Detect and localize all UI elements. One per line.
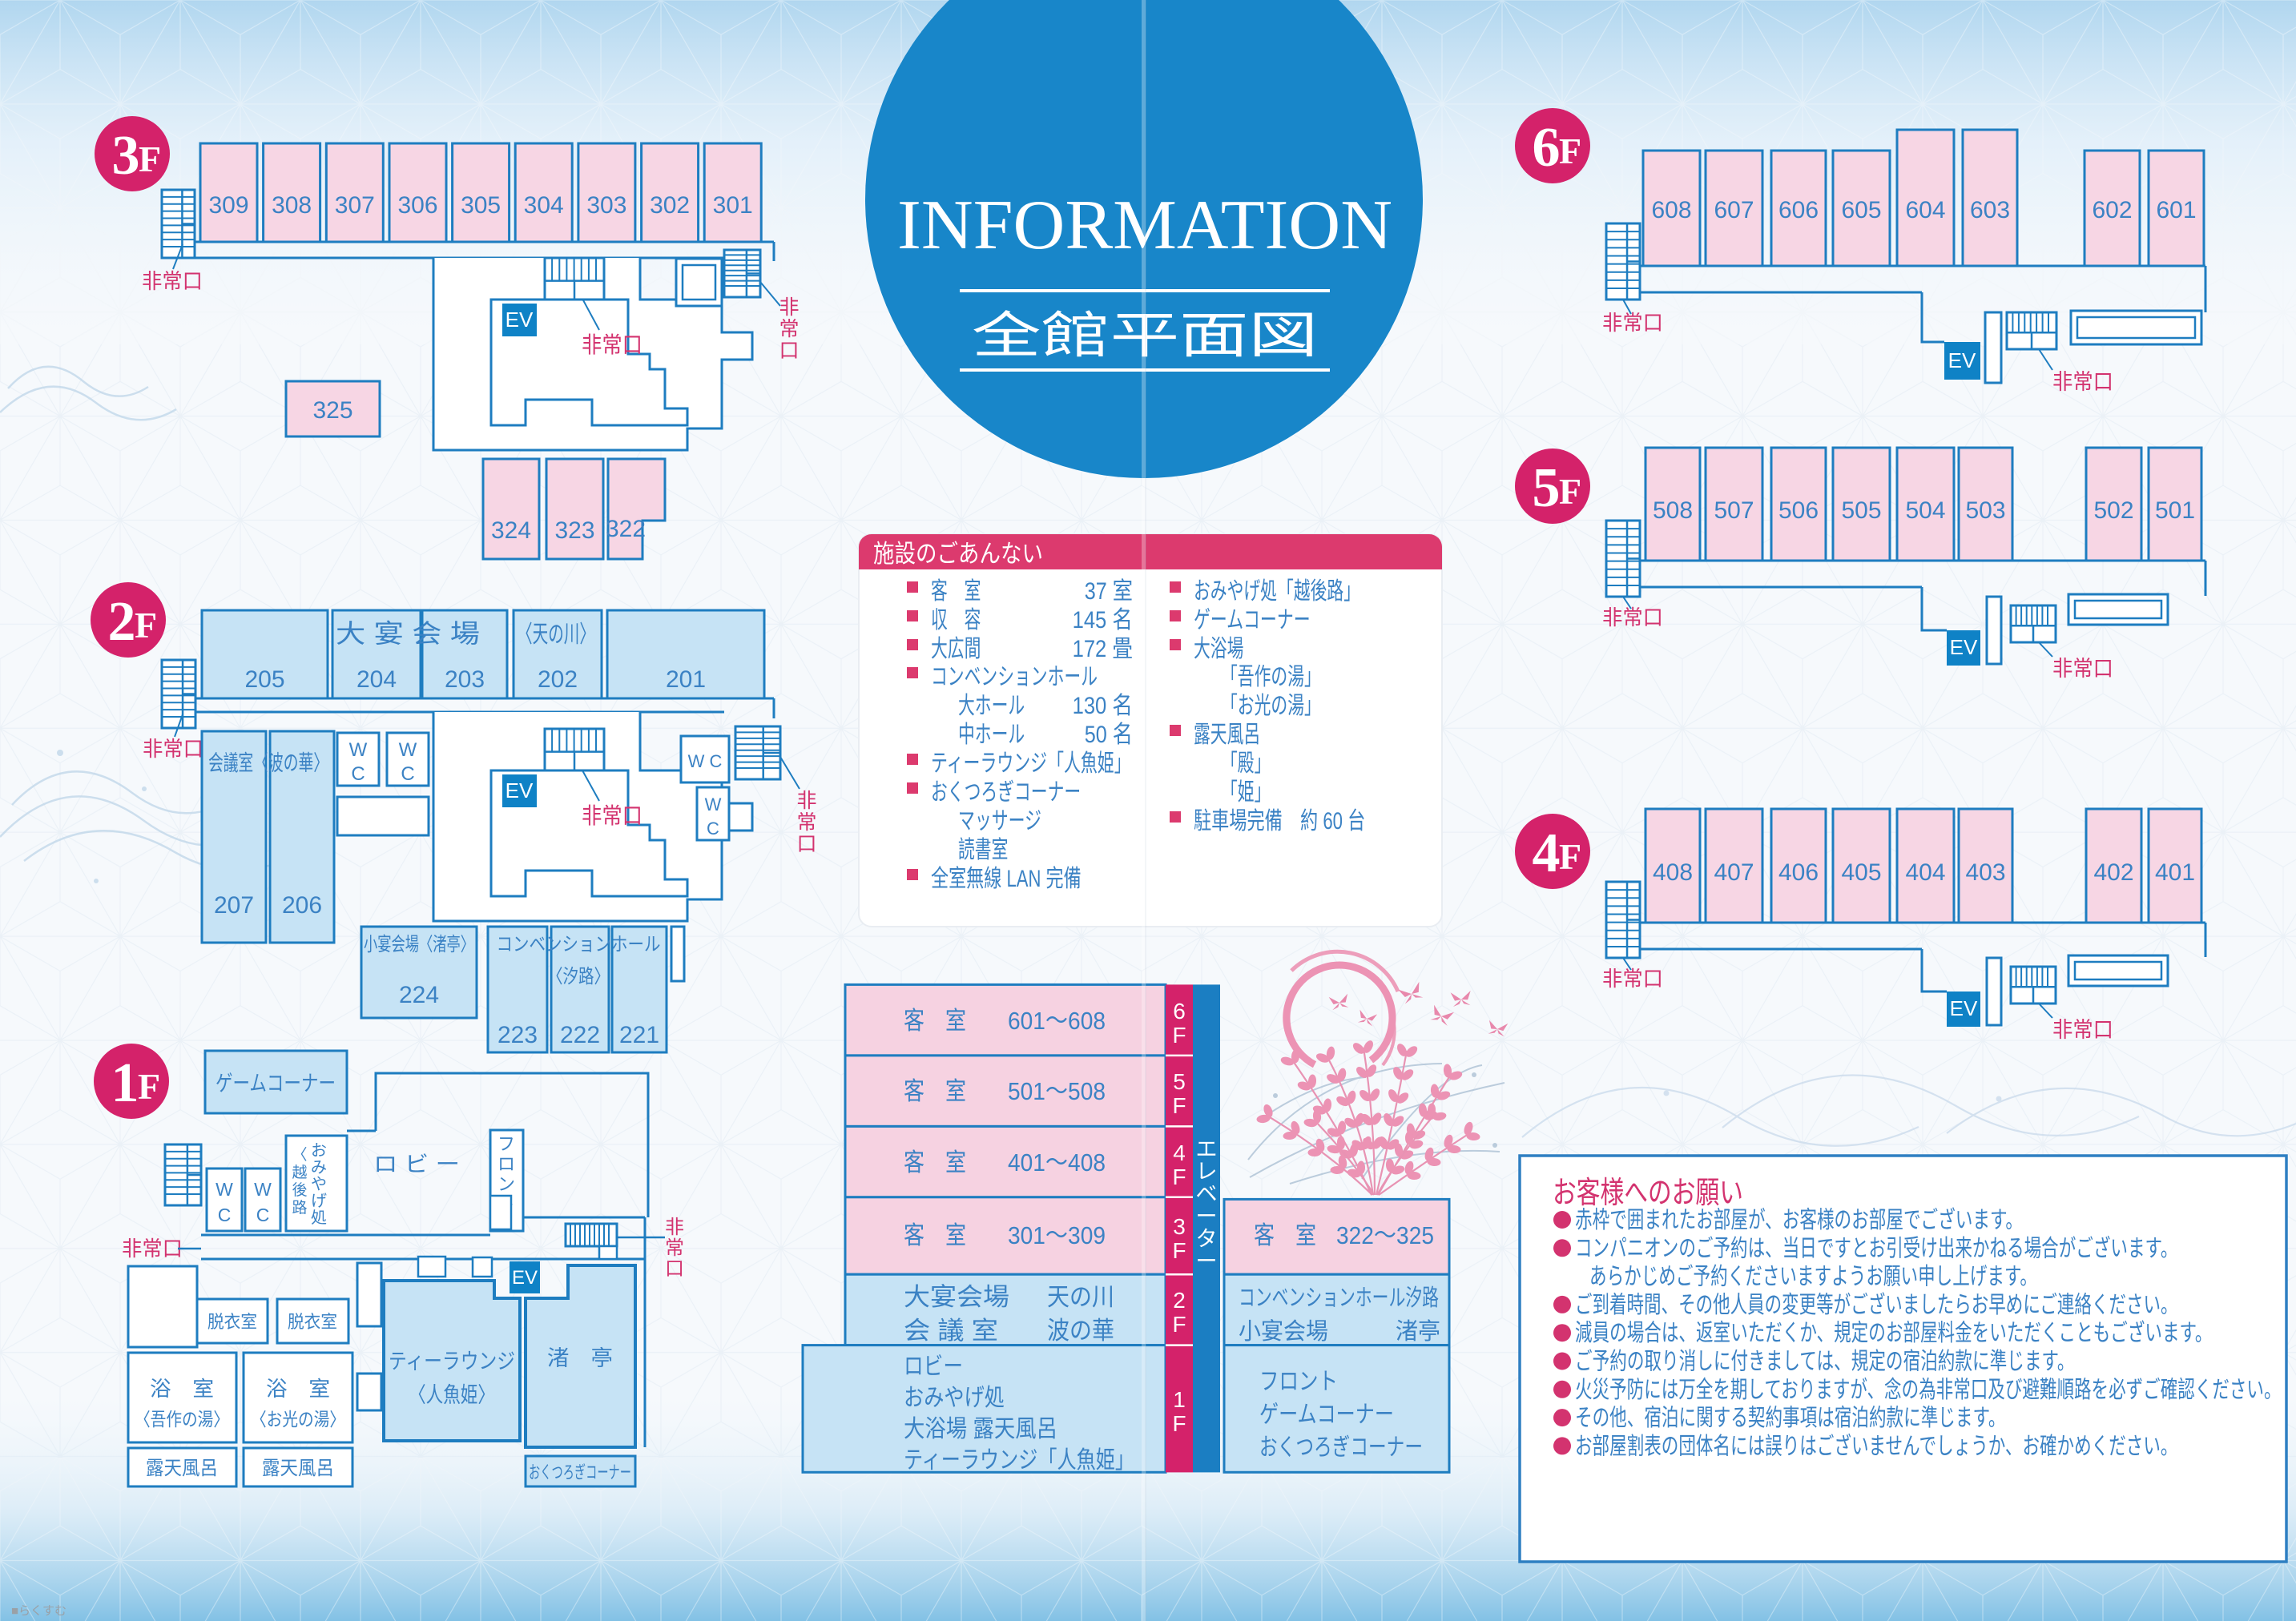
svg-text:F: F	[139, 139, 161, 179]
svg-text:ティーラウンジ「人魚姫」: ティーラウンジ「人魚姫」	[931, 750, 1131, 777]
svg-text:客 室: 客 室	[904, 1221, 966, 1249]
svg-text:604: 604	[1905, 197, 1945, 223]
svg-text:施設のごあんない: 施設のごあんない	[873, 540, 1043, 568]
svg-text:〈天の川〉: 〈天の川〉	[517, 621, 595, 648]
svg-text:あらかじめご予約くださいますようお願い申し上げます。: あらかじめご予約くださいますようお願い申し上げます。	[1589, 1264, 2037, 1290]
svg-text:130 名: 130 名	[1073, 693, 1133, 719]
svg-text:「お光の湯」: 「お光の湯」	[1221, 693, 1321, 719]
svg-text:エレベーター: エレベーター	[1196, 1137, 1218, 1273]
svg-text:非常口: 非常口	[142, 269, 203, 293]
svg-text:401〜408: 401〜408	[1008, 1148, 1106, 1177]
svg-text:301: 301	[713, 192, 753, 219]
svg-text:324: 324	[491, 517, 531, 544]
svg-text:EV: EV	[1950, 635, 1978, 659]
svg-text:W C: W C	[688, 751, 723, 771]
svg-text:507: 507	[1714, 497, 1754, 524]
svg-text:露天風呂: 露天風呂	[262, 1458, 334, 1479]
svg-text:大広間: 大広間	[931, 636, 981, 662]
svg-text:おみやげ処「越後路」: おみやげ処「越後路」	[1194, 578, 1360, 605]
svg-text:コンベンションホール: コンベンションホール	[497, 934, 661, 955]
svg-text:フロント: フロント	[1259, 1369, 1338, 1395]
svg-text:脱衣室: 脱衣室	[288, 1312, 337, 1332]
svg-text:4: 4	[1533, 823, 1561, 884]
svg-text:503: 503	[1965, 497, 2005, 524]
svg-text:F: F	[1172, 1238, 1186, 1263]
svg-text:コンパニオンのご予約は、当日ですとお引受け出来かねる場合がご: コンパニオンのご予約は、当日ですとお引受け出来かねる場合がございます。	[1575, 1235, 2178, 1261]
svg-text:502: 502	[2093, 497, 2133, 524]
svg-text:37 室: 37 室	[1085, 578, 1133, 605]
svg-text:全室無線 LAN 完備: 全室無線 LAN 完備	[931, 866, 1082, 892]
svg-text:501〜508: 501〜508	[1008, 1077, 1106, 1105]
svg-text:504: 504	[1905, 497, 1945, 524]
svg-text:145 名: 145 名	[1073, 607, 1133, 634]
svg-text:201: 201	[666, 666, 706, 693]
svg-text:「姫」: 「姫」	[1221, 779, 1271, 806]
svg-text:605: 605	[1841, 197, 1881, 223]
svg-text:波の華: 波の華	[1047, 1317, 1114, 1345]
svg-text:408: 408	[1653, 859, 1693, 886]
svg-text:ご到着時間、その他人員の変更等がございましたらお早めにご連絡: ご到着時間、その他人員の変更等がございましたらお早めにご連絡ください。	[1575, 1292, 2178, 1318]
svg-text:お部屋割表の団体名には誤りはございませんでしょうか、お確かめ: お部屋割表の団体名には誤りはございませんでしょうか、お確かめください。	[1575, 1433, 2178, 1459]
svg-text:露天風呂: 露天風呂	[1194, 722, 1260, 748]
svg-text:■らくすむ: ■らくすむ	[11, 1604, 66, 1618]
svg-text:205: 205	[244, 666, 284, 693]
svg-text:204: 204	[356, 666, 397, 693]
svg-text:赤枠で囲まれたお部屋が、お客様のお部屋でございます。: 赤枠で囲まれたお部屋が、お客様のお部屋でございます。	[1575, 1207, 2023, 1233]
svg-text:50 名: 50 名	[1085, 722, 1133, 748]
svg-text:ティーラウンジ: ティーラウンジ	[389, 1349, 515, 1374]
svg-text:407: 407	[1714, 859, 1754, 886]
svg-text:607: 607	[1714, 197, 1754, 223]
svg-text:602: 602	[2092, 197, 2132, 223]
svg-text:その他、宿泊に関する契約事項は宿泊約款に準じます。: その他、宿泊に関する契約事項は宿泊約款に準じます。	[1575, 1405, 2006, 1431]
svg-text:非常口: 非常口	[582, 332, 642, 357]
svg-text:大浴場: 大浴場	[1194, 636, 1243, 662]
svg-text:「吾作の湯」: 「吾作の湯」	[1221, 664, 1321, 690]
svg-text:501: 501	[2155, 497, 2195, 524]
svg-text:F: F	[1559, 131, 1581, 171]
svg-text:非常口: 非常口	[582, 803, 642, 828]
svg-text:火災予防には万全を期しておりますが、念の為非常口及び避難順路: 火災予防には万全を期しておりますが、念の為非常口及び避難順路を必ずご確認ください…	[1575, 1377, 2282, 1403]
svg-text:客 室: 客 室	[904, 1077, 966, 1105]
svg-text:207: 207	[214, 892, 254, 919]
svg-text:303: 303	[586, 192, 626, 219]
svg-text:F: F	[1172, 1093, 1186, 1118]
svg-text:5: 5	[1533, 457, 1561, 519]
svg-text:F: F	[1172, 1023, 1186, 1048]
svg-text:EV: EV	[506, 778, 534, 802]
svg-text:601: 601	[2156, 197, 2196, 223]
svg-text:大浴場 露天風呂: 大浴場 露天風呂	[904, 1416, 1057, 1442]
svg-text:小宴会場〈渚亭〉: 小宴会場〈渚亭〉	[364, 934, 474, 955]
svg-text:F: F	[135, 605, 157, 646]
svg-text:非常口: 非常口	[1602, 311, 1663, 335]
svg-text:202: 202	[538, 666, 578, 693]
svg-text:224: 224	[399, 982, 439, 1008]
svg-text:5: 5	[1173, 1069, 1186, 1094]
svg-text:404: 404	[1905, 859, 1945, 886]
svg-text:客 室: 客 室	[904, 1007, 966, 1035]
svg-text:F: F	[1172, 1411, 1186, 1436]
svg-text:大ホール: 大ホール	[958, 693, 1025, 719]
svg-text:天の川: 天の川	[1047, 1283, 1114, 1311]
svg-text:307: 307	[335, 192, 375, 219]
svg-text:〈汐路〉: 〈汐路〉	[547, 966, 610, 987]
svg-text:F: F	[1559, 471, 1581, 512]
svg-text:6: 6	[1173, 999, 1186, 1024]
svg-text:読書室: 読書室	[958, 837, 1008, 863]
svg-text:322: 322	[606, 516, 646, 542]
svg-text:306: 306	[397, 192, 437, 219]
svg-text:浴 室: 浴 室	[150, 1377, 214, 1401]
svg-text:3: 3	[112, 125, 140, 187]
svg-text:〈吾作の湯〉: 〈吾作の湯〉	[135, 1409, 229, 1430]
svg-text:中ホール: 中ホール	[958, 722, 1025, 748]
svg-text:601〜608: 601〜608	[1008, 1007, 1106, 1035]
svg-text:非常口: 非常口	[122, 1237, 183, 1261]
svg-text:大 宴 会 場: 大 宴 会 場	[336, 619, 480, 648]
svg-text:〈お光の湯〉: 〈お光の湯〉	[251, 1409, 345, 1430]
svg-text:非常口: 非常口	[1602, 967, 1663, 991]
svg-text:2: 2	[1173, 1288, 1186, 1313]
svg-text:3: 3	[1173, 1214, 1186, 1239]
svg-text:ご予約の取り消しに付きましては、規定の宿泊約款に準じます。: ご予約の取り消しに付きましては、規定の宿泊約款に準じます。	[1575, 1349, 2075, 1375]
svg-text:客 室: 客 室	[1254, 1221, 1316, 1249]
svg-text:会議室〈波の華〉: 会議室〈波の華〉	[208, 751, 328, 775]
svg-text:おみやげ処: おみやげ処	[311, 1142, 327, 1227]
svg-text:〈人魚姫〉: 〈人魚姫〉	[409, 1383, 495, 1407]
svg-text:309: 309	[208, 192, 248, 219]
svg-text:収 容: 収 容	[931, 607, 981, 634]
svg-text:コンベンションホール: コンベンションホール	[931, 664, 1098, 690]
svg-text:ティーラウンジ「人魚姫」: ティーラウンジ「人魚姫」	[904, 1447, 1134, 1474]
svg-text:渚 亭: 渚 亭	[547, 1346, 613, 1370]
svg-text:非常口: 非常口	[796, 790, 816, 855]
svg-text:EV: EV	[512, 1267, 538, 1289]
svg-text:マッサージ: マッサージ	[958, 808, 1041, 835]
svg-text:浴 室: 浴 室	[266, 1377, 330, 1401]
svg-text:302: 302	[650, 192, 690, 219]
svg-text:223: 223	[497, 1022, 538, 1048]
svg-text:4: 4	[1173, 1140, 1186, 1165]
svg-text:渚亭: 渚亭	[1396, 1318, 1440, 1345]
svg-text:おくつろぎコーナー: おくつろぎコーナー	[931, 779, 1081, 806]
svg-text:ゲームコーナー: ゲームコーナー	[1194, 607, 1311, 634]
svg-text:おくつろぎコーナー: おくつろぎコーナー	[529, 1462, 631, 1482]
svg-text:おみやげ処: おみやげ処	[904, 1385, 1005, 1411]
svg-text:非常口: 非常口	[2052, 370, 2113, 394]
svg-text:おくつろぎコーナー: おくつろぎコーナー	[1259, 1434, 1423, 1461]
svg-text:323: 323	[554, 517, 594, 544]
svg-text:ゲームコーナー: ゲームコーナー	[216, 1072, 336, 1096]
svg-text:405: 405	[1841, 859, 1881, 886]
svg-text:F: F	[1559, 836, 1581, 877]
svg-text:脱衣室: 脱衣室	[207, 1312, 257, 1332]
svg-text:508: 508	[1653, 497, 1693, 524]
svg-text:608: 608	[1651, 197, 1691, 223]
svg-text:401: 401	[2155, 859, 2195, 886]
svg-text:減員の場合は、返室いただくか、規定のお部屋料金をいただくこと: 減員の場合は、返室いただくか、規定のお部屋料金をいただくこともございます。	[1575, 1320, 2213, 1346]
svg-text:「殿」: 「殿」	[1221, 750, 1271, 777]
svg-text:1: 1	[1173, 1387, 1186, 1412]
svg-text:1: 1	[111, 1052, 139, 1114]
svg-text:小宴会場: 小宴会場	[1239, 1318, 1328, 1345]
svg-text:会 議 室: 会 議 室	[904, 1317, 998, 1345]
svg-text:非常口: 非常口	[665, 1217, 684, 1280]
svg-text:403: 403	[1965, 859, 2005, 886]
svg-text:402: 402	[2093, 859, 2133, 886]
svg-text:F: F	[1172, 1312, 1186, 1337]
svg-text:221: 221	[619, 1022, 659, 1048]
svg-text:322〜325: 322〜325	[1336, 1221, 1434, 1249]
svg-text:非常口: 非常口	[779, 296, 799, 362]
svg-text:305: 305	[461, 192, 501, 219]
svg-text:2: 2	[108, 591, 136, 653]
svg-text:ロ ビ ー: ロ ビ ー	[373, 1152, 460, 1177]
svg-text:コンベンションホール汐路: コンベンションホール汐路	[1239, 1285, 1439, 1311]
svg-text:駐車場完備 約 60 台: 駐車場完備 約 60 台	[1194, 808, 1365, 835]
svg-text:露天風呂: 露天風呂	[146, 1458, 218, 1479]
svg-text:505: 505	[1841, 497, 1881, 524]
svg-text:非常口: 非常口	[1602, 605, 1663, 629]
svg-text:206: 206	[282, 892, 322, 919]
svg-text:客 室: 客 室	[904, 1148, 966, 1177]
svg-text:222: 222	[560, 1022, 600, 1048]
svg-text:172 畳: 172 畳	[1073, 636, 1133, 662]
svg-text:301〜309: 301〜309	[1008, 1221, 1106, 1249]
svg-text:203: 203	[445, 666, 485, 693]
svg-text:非常口: 非常口	[143, 737, 203, 761]
svg-text:F: F	[1172, 1164, 1186, 1189]
svg-text:EV: EV	[1950, 996, 1978, 1020]
svg-text:603: 603	[1970, 197, 2010, 223]
svg-text:6: 6	[1533, 117, 1561, 179]
svg-text:EV: EV	[1948, 348, 1976, 372]
svg-text:F: F	[138, 1066, 160, 1107]
svg-text:非常口: 非常口	[2052, 1018, 2113, 1042]
svg-text:308: 308	[272, 192, 312, 219]
svg-text:EV: EV	[506, 308, 534, 332]
svg-text:客 室: 客 室	[931, 578, 981, 605]
svg-text:非常口: 非常口	[2052, 657, 2113, 681]
svg-text:325: 325	[312, 397, 352, 424]
svg-text:506: 506	[1778, 497, 1819, 524]
svg-text:お客様へのお願い: お客様へのお願い	[1553, 1177, 1743, 1210]
svg-text:大宴会場: 大宴会場	[904, 1283, 1009, 1311]
svg-text:406: 406	[1778, 859, 1819, 886]
svg-text:606: 606	[1778, 197, 1819, 223]
svg-text:304: 304	[524, 192, 564, 219]
svg-text:ゲームコーナー: ゲームコーナー	[1259, 1402, 1394, 1428]
svg-text:ロビー: ロビー	[904, 1354, 963, 1380]
